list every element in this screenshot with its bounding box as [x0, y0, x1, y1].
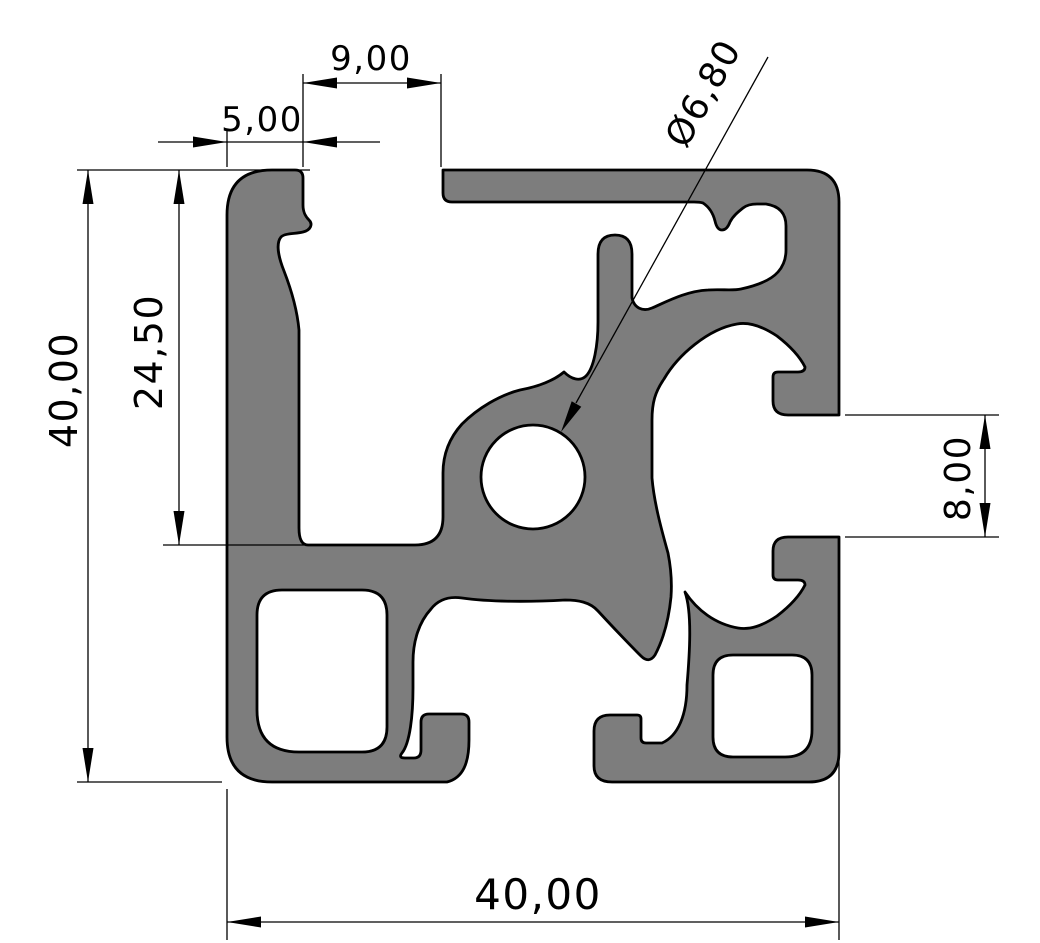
- dimension-label-overall-width: 40,00: [474, 870, 602, 919]
- dimension-label-overall-height: 40,00: [42, 332, 86, 448]
- arrowhead: [83, 748, 94, 782]
- drawing-canvas: 9,00 5,00 40,00 24,50 8,00 40,00 Ø6,80: [0, 0, 1040, 943]
- arrowhead: [303, 137, 337, 148]
- dimension-label-groove-height: 24,50: [127, 294, 171, 410]
- arrowhead: [83, 170, 94, 204]
- arrowhead: [174, 170, 185, 204]
- technical-drawing: 9,00 5,00 40,00 24,50 8,00 40,00 Ø6,80: [0, 0, 1040, 943]
- extension-lines: [77, 74, 999, 940]
- arrowhead: [227, 917, 261, 928]
- dimension-label-slot-opening: 8,00: [938, 435, 979, 521]
- dimension-label-hole-diameter: Ø6,80: [658, 33, 750, 154]
- arrowhead: [407, 78, 441, 89]
- arrowhead: [805, 917, 839, 928]
- arrowhead: [980, 503, 991, 537]
- dimension-label-top-slot-offset: 9,00: [330, 39, 412, 79]
- profile-cross-section: [227, 170, 839, 782]
- arrowhead: [174, 511, 185, 545]
- dimension-label-lip-width: 5,00: [221, 100, 303, 140]
- arrowhead: [980, 415, 991, 449]
- arrowhead: [303, 78, 337, 89]
- arrowheads: [83, 78, 991, 928]
